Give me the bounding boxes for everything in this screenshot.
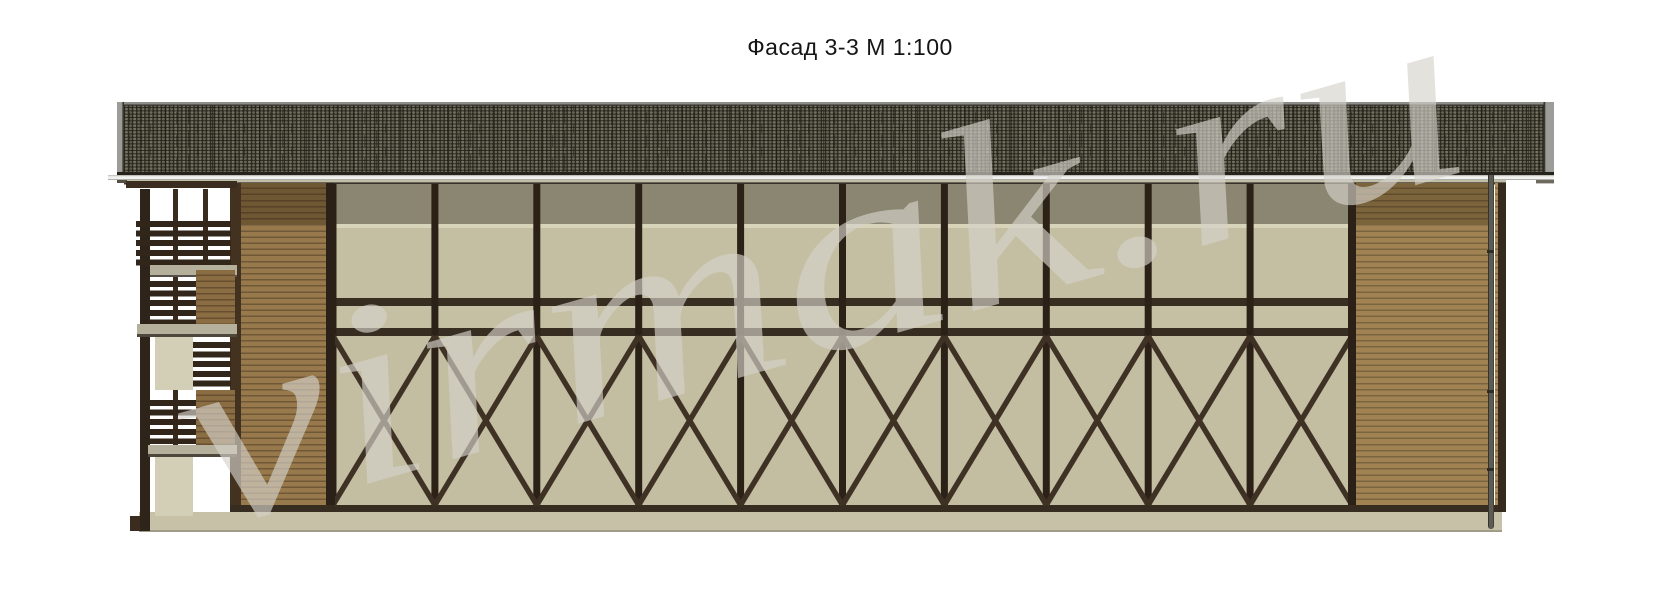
svg-text:virmak.ru: virmak.ru [142, 0, 1494, 585]
